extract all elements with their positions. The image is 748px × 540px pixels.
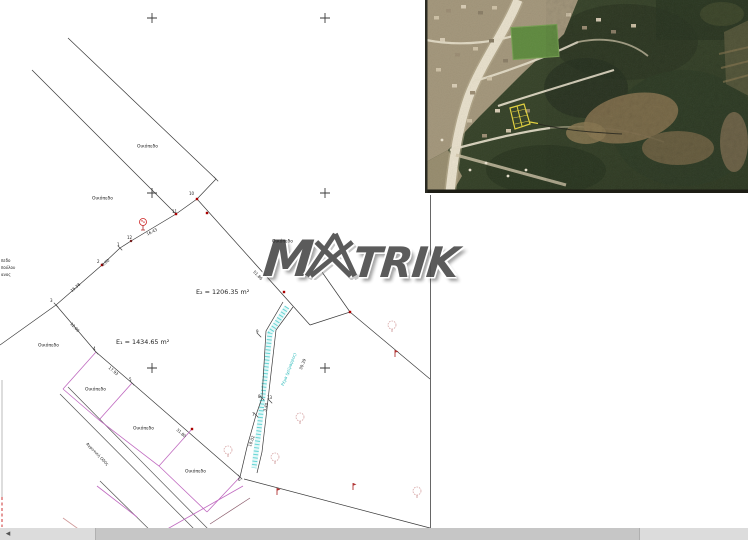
watermark-letters-trik: TRIK: [351, 244, 460, 282]
photo-left-border: [426, 0, 428, 193]
watermark-triangle-a-icon: [302, 230, 364, 284]
tree-symbol-icon: [224, 321, 421, 498]
cad-viewport[interactable]: M TRIK ΟικόπεδοΟικόπεδοΟικόπεδοΟικόπεδοΟ…: [0, 0, 748, 540]
scrollbar-thumb[interactable]: [95, 528, 640, 540]
stream-strip: [254, 307, 287, 468]
aerial-photo-inset: [425, 0, 748, 193]
grid-cross-icon: [147, 13, 330, 373]
photo-noise-texture: [426, 0, 748, 193]
matrik-watermark-logo: M TRIK: [261, 228, 462, 282]
photo-bottom-border: [426, 190, 748, 194]
horizontal-scrollbar[interactable]: ◂: [0, 528, 748, 540]
parcel-subdivision-lines: [63, 352, 243, 532]
scroll-left-arrow-icon[interactable]: ◂: [0, 528, 16, 540]
pole-symbol-icon: [277, 350, 399, 495]
red-tree-symbol-icon: [140, 219, 147, 231]
